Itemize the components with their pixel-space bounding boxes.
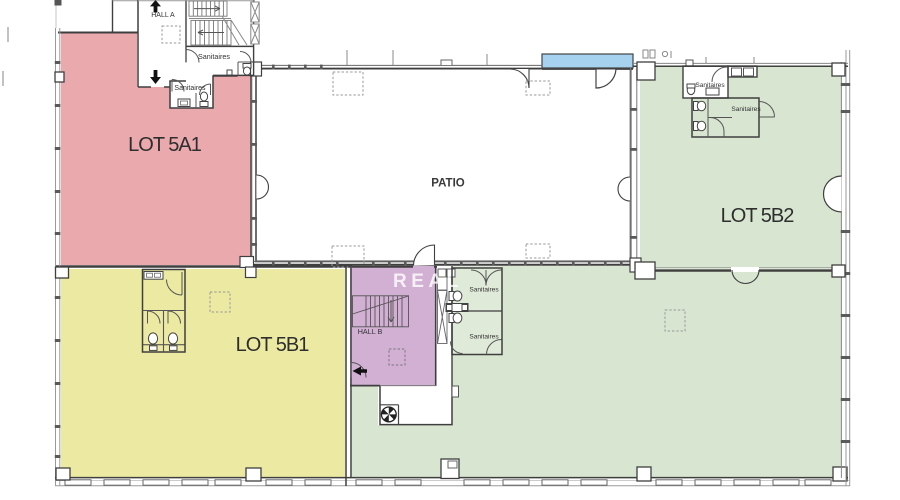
svg-text:Sanitaires: Sanitaires (469, 334, 499, 341)
svg-text:Sanitaires: Sanitaires (731, 106, 761, 113)
svg-text:Sanitaires: Sanitaires (174, 85, 206, 92)
svg-text:HALL A: HALL A (151, 12, 175, 19)
svg-text:REAL: REAL (393, 271, 463, 292)
svg-text:Sanitaires: Sanitaires (198, 52, 230, 61)
svg-text:HALL B: HALL B (358, 327, 383, 336)
svg-text:LOT 5A1: LOT 5A1 (128, 134, 202, 156)
svg-text:LOT 5B2: LOT 5B2 (721, 205, 795, 227)
svg-text:LOT 5B1: LOT 5B1 (236, 334, 310, 356)
svg-text:Sanitaires: Sanitaires (469, 287, 499, 294)
svg-text:PATIO: PATIO (431, 178, 464, 190)
